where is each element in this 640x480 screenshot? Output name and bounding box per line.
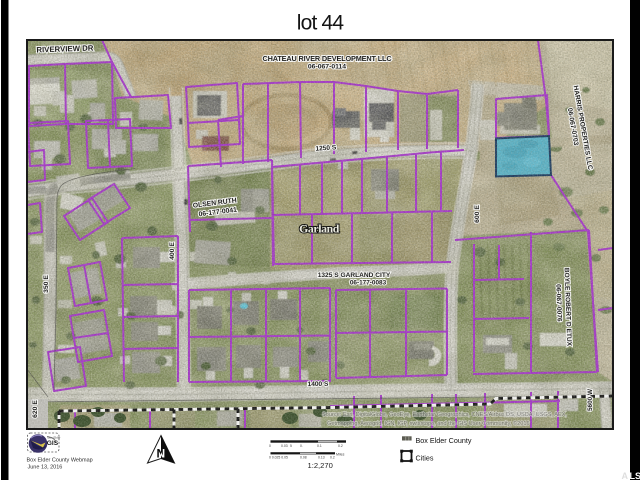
svg-text:0.1: 0.1 bbox=[317, 444, 322, 448]
svg-text:Miles: Miles bbox=[336, 453, 345, 457]
svg-text:0 0.025 0.05: 0 0.025 0.05 bbox=[269, 456, 288, 460]
svg-text:0.03: 0.03 bbox=[281, 444, 288, 448]
svg-text:0.: 0. bbox=[300, 444, 303, 448]
svg-text:GIS: GIS bbox=[47, 440, 59, 447]
svg-text:LS: LS bbox=[630, 471, 640, 480]
svg-text:5: 5 bbox=[290, 444, 292, 448]
svg-text:Cities: Cities bbox=[416, 453, 434, 462]
svg-text:Box Elder: Box Elder bbox=[48, 436, 61, 440]
svg-text:1:2,270: 1:2,270 bbox=[308, 461, 333, 470]
svg-text:0.08: 0.08 bbox=[300, 456, 307, 460]
svg-text:A: A bbox=[622, 471, 629, 480]
svg-text:0: 0 bbox=[269, 444, 271, 448]
svg-text:lot 44: lot 44 bbox=[297, 12, 345, 35]
svg-text:0.2: 0.2 bbox=[338, 444, 343, 448]
svg-text:0.2: 0.2 bbox=[330, 456, 335, 460]
svg-text:Box Elder County Webmap: Box Elder County Webmap bbox=[27, 458, 93, 464]
svg-text:Box Elder County: Box Elder County bbox=[416, 436, 472, 445]
svg-text:June 13, 2016: June 13, 2016 bbox=[28, 465, 63, 471]
svg-text:0.13: 0.13 bbox=[318, 456, 325, 460]
